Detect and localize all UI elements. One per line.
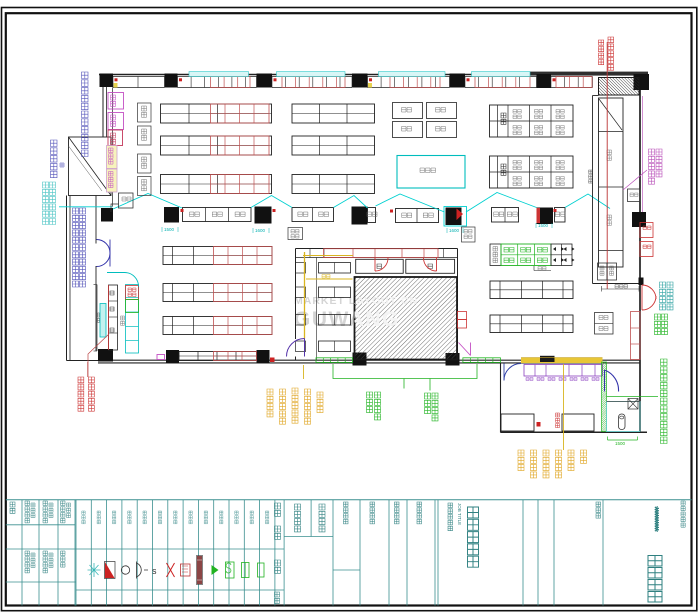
svg-text:1500: 1500	[615, 441, 626, 446]
svg-text:s: s	[152, 566, 157, 576]
svg-text:1500: 1500	[538, 223, 549, 228]
svg-text:1600: 1600	[255, 228, 266, 233]
svg-text:JOB TITLE: JOB TITLE	[457, 503, 462, 525]
svg-text:**********: **********	[648, 506, 662, 532]
svg-text:1600: 1600	[449, 228, 460, 233]
svg-text:1500: 1500	[164, 227, 175, 232]
